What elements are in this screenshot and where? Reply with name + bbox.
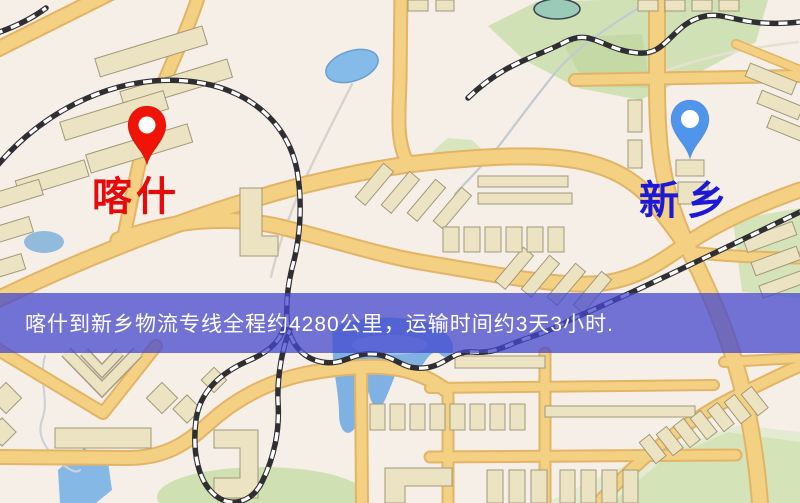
destination-map-pin-icon[interactable] <box>668 98 712 164</box>
map-screenshot: 喀什 新乡 喀什到新乡物流专线全程约4280公里，运输时间约3天3小时. <box>0 0 800 503</box>
route-info-banner: 喀什到新乡物流专线全程约4280公里，运输时间约3天3小时. <box>0 293 800 353</box>
destination-city-label: 新乡 <box>639 181 735 221</box>
map-canvas <box>0 0 800 503</box>
route-info-text: 喀什到新乡物流专线全程约4280公里，运输时间约3天3小时. <box>0 308 614 338</box>
origin-city-label: 喀什 <box>92 177 180 217</box>
origin-map-pin-icon[interactable] <box>125 104 169 170</box>
